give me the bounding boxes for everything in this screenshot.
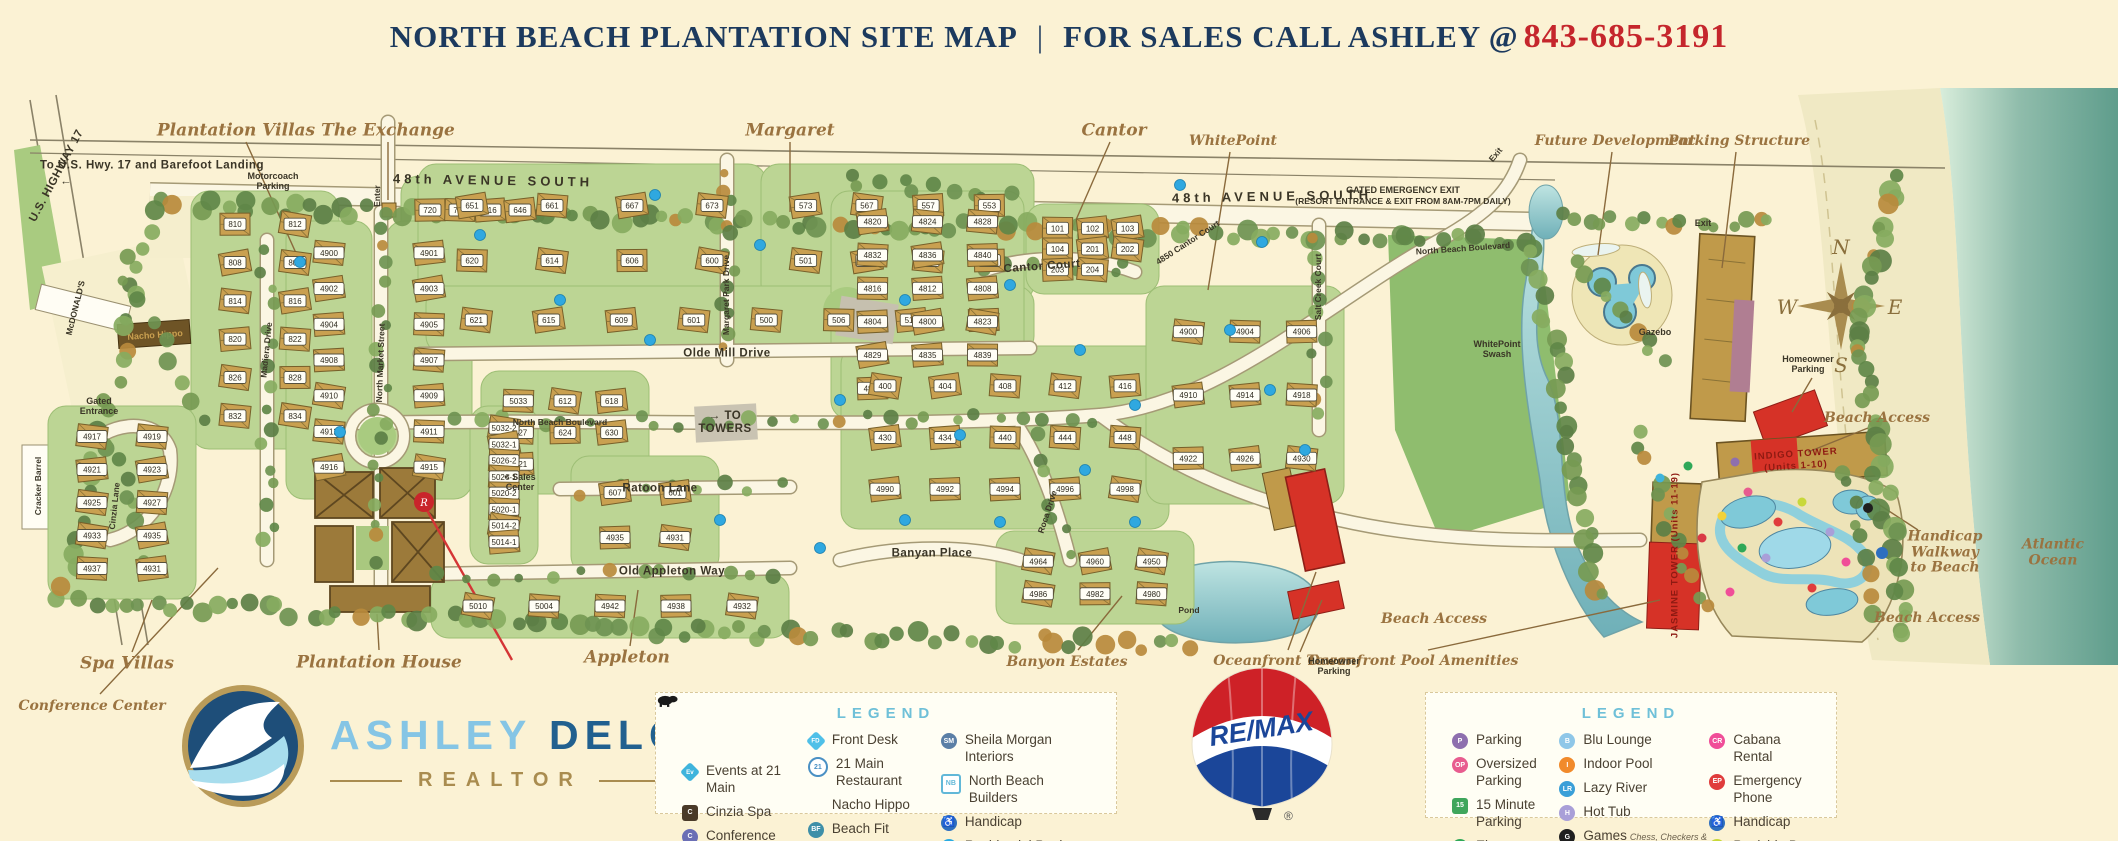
legend-label: Blu Lounge [1583,732,1651,747]
svg-text:4938: 4938 [667,602,685,611]
house-number-5033: 5033 [503,395,533,407]
svg-text:4901: 4901 [420,249,438,258]
house-number-607: 607 [604,487,626,499]
house-number-4998: 4998 [1110,483,1140,495]
svg-text:®: ® [1284,809,1293,823]
svg-text:4994: 4994 [996,485,1014,494]
house-number-4823: 4823 [968,316,998,328]
site-map-page: { "title": { "main": "NORTH BEACH PLANTA… [0,0,2118,841]
svg-text:104: 104 [1051,245,1065,254]
svg-text:4915: 4915 [420,463,438,472]
residential-pool-dot [475,230,486,241]
legend-label: Cabana Rental [1733,732,1780,764]
svg-text:4935: 4935 [143,532,161,541]
house-number-4919: 4919 [137,431,167,443]
legend-label: Events at 21 Main [706,763,781,795]
legend-label: Hot Tub [1583,804,1630,819]
svg-text:4900: 4900 [1179,328,1197,337]
residential-pool-dot [1257,237,1268,248]
legend-item-beach-fit: BFBeach Fit [808,821,941,838]
house-number-4840: 4840 [968,249,998,261]
hot-tub-icon: H [1559,805,1575,821]
house-number-4824: 4824 [913,216,943,228]
house-number-4950: 4950 [1137,555,1167,567]
house-number-4808: 4808 [968,282,998,294]
legend-item-15-minute-parking: 1515 Minute Parking [1452,797,1559,831]
legend-item-handicap: ♿Handicap [1709,814,1810,831]
svg-text:5026-1: 5026-1 [492,473,517,482]
svg-text:614: 614 [545,257,559,266]
legend-label: Conference Center [706,828,776,841]
lawn-pond-row [996,531,1194,624]
svg-text:4986: 4986 [1029,590,1047,599]
title-main: NORTH BEACH PLANTATION SITE MAP [390,19,1018,54]
house-number-5014-1: 5014-1 [489,536,519,548]
house-number-4927: 4927 [137,497,167,509]
house-number-434: 434 [934,432,956,444]
legend-label: Residential Pool [965,838,1063,841]
svg-text:4828: 4828 [974,218,992,227]
residential-pool-dot [1005,280,1016,291]
residential-pool-dot [835,395,846,406]
house-number-4800: 4800 [913,316,943,328]
house-number-4908: 4908 [314,354,344,366]
legend-item-poolside-bar: PBPoolside Bar& GrillSeasonal [1709,838,1810,841]
house-number-4921: 4921 [77,464,107,476]
house-number-621: 621 [465,314,487,326]
gold-rule-left [330,780,402,782]
games-icon: G [1559,829,1575,841]
svg-text:820: 820 [228,335,242,344]
house-number-810: 810 [224,218,246,230]
realtor-first-name: ASHLEY [330,712,532,758]
legend-label: 21 Main Restaurant [836,756,902,788]
svg-text:661: 661 [545,202,559,211]
house-number-720: 720 [419,204,441,216]
house-number-812: 812 [284,218,306,230]
house-number-4812: 4812 [913,282,943,294]
house-number-448: 448 [1114,432,1136,444]
residential-pool-dot [1075,345,1086,356]
svg-text:416: 416 [1118,382,1132,391]
house-number-4935: 4935 [137,530,167,542]
house-number-201: 201 [1082,243,1104,255]
svg-text:102: 102 [1086,224,1100,233]
svg-text:808: 808 [228,259,242,268]
house-number-4900: 4900 [314,247,344,259]
house-number-4931: 4931 [660,532,690,544]
balloon-basket [1252,808,1272,820]
house-number-4915: 4915 [414,461,444,473]
residential-pool-dot [815,543,826,554]
north-beach-builders-icon: NB [941,774,961,794]
svg-text:4935: 4935 [606,534,624,543]
svg-text:506: 506 [832,316,846,325]
residential-pool-dot [1265,385,1276,396]
house-number-4960: 4960 [1080,555,1110,567]
svg-text:4909: 4909 [420,392,438,401]
svg-text:4927: 4927 [143,499,161,508]
svg-text:5014-1: 5014-1 [492,538,517,547]
realtor-title: REALTOR [418,769,583,792]
house-number-600: 600 [701,255,723,267]
legend-item-oversized-parking: OPOversized Parking [1452,756,1559,790]
svg-text:4902: 4902 [320,285,338,294]
svg-text:4919: 4919 [143,433,161,442]
svg-text:4823: 4823 [974,318,992,327]
svg-text:600: 600 [705,257,719,266]
svg-text:4930: 4930 [1293,454,1311,463]
svg-text:N: N [1831,235,1851,259]
legend-label: Elevators [1476,838,1532,841]
svg-text:601: 601 [668,489,682,498]
legend-item-blu-lounge: BBlu Lounge [1559,732,1709,749]
svg-text:5004: 5004 [535,602,553,611]
house-number-4990: 4990 [870,483,900,495]
house-number-5026-1: 5026-1 [489,471,519,483]
house-number-4820: 4820 [858,216,888,228]
house-number-4910: 4910 [314,390,344,402]
svg-text:4900: 4900 [320,249,338,258]
house-number-4938: 4938 [661,600,691,612]
svg-text:E: E [1887,295,1903,319]
legend-item-north-beach-builders: NBNorth Beach Builders [941,773,1090,807]
svg-text:812: 812 [288,220,302,229]
house-number-615: 615 [538,314,560,326]
house-number-808: 808 [224,257,246,269]
svg-text:4964: 4964 [1029,557,1047,566]
svg-text:4921: 4921 [83,466,101,475]
residential-pool-dot [1130,400,1141,411]
svg-text:624: 624 [558,429,572,438]
house-number-624: 624 [554,427,576,439]
house-number-412: 412 [1054,380,1076,392]
svg-text:430: 430 [878,434,892,443]
house-number-4816: 4816 [858,282,888,294]
svg-text:4908: 4908 [320,356,338,365]
svg-text:621: 621 [470,316,484,325]
house-number-4917: 4917 [77,431,107,443]
house-number-4904: 4904 [314,318,344,330]
svg-text:4829: 4829 [864,351,882,360]
svg-text:557: 557 [921,202,935,211]
svg-text:4824: 4824 [919,218,937,227]
house-number-832: 832 [224,410,246,422]
house-number-4903: 4903 [414,283,444,295]
beach-fit-icon: BF [808,822,824,838]
house-number-4996: 4996 [1050,483,1080,495]
house-number-573: 573 [795,200,817,212]
legend-amenities-right: LEGEND PParkingOPOversized Parking1515 M… [1425,692,1837,818]
svg-text:607: 607 [608,489,622,498]
oversized-parking-icon: OP [1452,757,1468,773]
residential-pool-dot [645,335,656,346]
svg-text:567: 567 [860,202,874,211]
house-number-618: 618 [601,395,623,407]
svg-text:R: R [419,498,428,509]
house-number-4905: 4905 [414,318,444,330]
house-number-822: 822 [284,333,306,345]
residential-pool-dot [335,427,346,438]
svg-text:4926: 4926 [1236,454,1254,463]
house-number-816: 816 [284,295,306,307]
svg-text:4910: 4910 [320,392,338,401]
house-number-612: 612 [554,395,576,407]
house-number-4900: 4900 [1173,326,1203,338]
svg-text:434: 434 [938,434,952,443]
cabana-rental-icon: CR [1709,733,1725,749]
svg-text:4960: 4960 [1086,557,1104,566]
house-number-203: 203 [1047,264,1069,276]
svg-text:630: 630 [605,429,619,438]
house-number-104: 104 [1047,243,1069,255]
house-number-204: 204 [1082,264,1104,276]
house-number-4901: 4901 [414,247,444,259]
21-main-restaurant-icon: 21 [808,757,828,777]
house-number-4925: 4925 [77,497,107,509]
house-number-4911: 4911 [414,425,444,437]
house-number-430: 430 [874,432,896,444]
svg-text:4918: 4918 [1293,391,1311,400]
svg-text:4916: 4916 [320,463,338,472]
house-number-553: 553 [978,200,1000,212]
residential-pool-dot [755,240,766,251]
house-number-4992: 4992 [930,483,960,495]
legend-label: Lazy River [1583,780,1647,795]
svg-text:448: 448 [1118,434,1132,443]
svg-text:440: 440 [998,434,1012,443]
svg-text:4905: 4905 [420,320,438,329]
legend-item-lazy-river: LRLazy River [1559,780,1709,797]
svg-text:615: 615 [542,316,556,325]
legend-label: Handicap [1733,814,1790,829]
house-number-4839: 4839 [968,349,998,361]
legend-label: 15 Minute Parking [1476,797,1535,829]
svg-text:816: 816 [288,297,302,306]
svg-text:501: 501 [799,257,813,266]
svg-text:4812: 4812 [919,284,937,293]
svg-text:444: 444 [1058,434,1072,443]
legend-item-sheila-morgan-interiors: SMSheila Morgan Interiors [941,732,1090,766]
house-number-614: 614 [541,255,563,267]
residential-pool-dot [1175,180,1186,191]
svg-text:4804: 4804 [864,318,882,327]
svg-text:720: 720 [423,206,437,215]
legend-label: Sheila Morgan Interiors [965,732,1052,764]
15-minute-parking-icon: 15 [1452,798,1468,814]
svg-text:5026-2: 5026-2 [492,457,517,466]
residential-pool-dot [955,430,966,441]
title-phone[interactable]: 843-685-3191 [1524,18,1729,55]
svg-text:5014-2: 5014-2 [492,522,517,531]
legend-label: Oversized Parking [1476,756,1537,788]
legend-item-parking: PParking [1452,732,1559,749]
svg-text:4808: 4808 [974,284,992,293]
house-number-606: 606 [621,255,643,267]
lawn-appleton-block [571,456,719,574]
house-number-826: 826 [224,372,246,384]
house-number-630: 630 [601,427,623,439]
house-number-416: 416 [1114,380,1136,392]
svg-text:204: 204 [1086,266,1100,275]
svg-text:834: 834 [288,412,302,421]
svg-text:4904: 4904 [320,320,338,329]
svg-text:4914: 4914 [1236,391,1254,400]
house-number-4937: 4937 [77,563,107,575]
legend-item-conference-center: CConference Center [682,828,808,841]
house-number-567: 567 [856,200,878,212]
svg-text:612: 612 [558,397,572,406]
house-number-4909: 4909 [414,390,444,402]
handicap-icon: ♿ [1709,815,1725,831]
house-number-4804: 4804 [858,316,888,328]
svg-text:4816: 4816 [864,284,882,293]
handicap-icon: ♿ [941,815,957,831]
house-number-673: 673 [701,200,723,212]
residential-pool-dot [900,515,911,526]
svg-text:4982: 4982 [1086,590,1104,599]
svg-text:826: 826 [228,374,242,383]
house-number-620: 620 [461,255,483,267]
house-number-202: 202 [1117,243,1139,255]
legend-item-elevators: EElevators [1452,838,1559,841]
svg-text:203: 203 [1051,266,1065,275]
indoor-pool-icon: I [1559,757,1575,773]
page-title: NORTH BEACH PLANTATION SITE MAP | FOR SA… [0,18,2118,56]
legend-item-cabana-rental: CRCabana Rental [1709,732,1810,766]
conference-center-icon: C [682,829,698,841]
svg-text:202: 202 [1121,245,1135,254]
legend-label: Front Desk [832,732,898,747]
house-number-440: 440 [994,432,1016,444]
house-number-651: 651 [461,200,483,212]
legend-item-handicap: ♿Handicap [941,814,1090,831]
house-number-4931: 4931 [137,563,167,575]
house-number-646: 646 [509,204,531,216]
cinzia-spa-icon: C [682,805,698,821]
svg-text:408: 408 [998,382,1012,391]
house-number-101: 101 [1047,222,1069,234]
house-number-828: 828 [284,372,306,384]
svg-text:822: 822 [288,335,302,344]
svg-text:4998: 4998 [1116,485,1134,494]
house-number-661: 661 [541,200,563,212]
svg-text:553: 553 [983,202,997,211]
svg-text:4942: 4942 [601,602,619,611]
house-number-4829: 4829 [858,349,888,361]
residential-pool-dot [650,190,661,201]
svg-text:4925: 4925 [83,499,101,508]
house-number-4832: 4832 [858,249,888,261]
legend-resort-center: LEGEND EvEvents at 21 MainCCinzia SpaCCo… [655,692,1117,814]
legend-main-title: LEGEND [656,693,1116,722]
legend-item-nacho-hippo: Nacho Hippo [808,797,941,814]
svg-text:4910: 4910 [1179,391,1197,400]
legend-item-hot-tub: HHot Tub [1559,804,1709,821]
parking-icon: P [1452,733,1468,749]
house-number-4902: 4902 [314,283,344,295]
svg-text:4820: 4820 [864,218,882,227]
house-number-404: 404 [934,380,956,392]
legend-label: Poolside Bar [1733,838,1810,841]
house-number-4942: 4942 [595,600,625,612]
svg-text:4932: 4932 [733,602,751,611]
legend-item-residential-pool: Residential Pool [941,838,1090,841]
legend-label: Parking [1476,732,1522,747]
front-desk-icon: FD [806,731,826,751]
svg-text:618: 618 [605,397,619,406]
legend-label: Indoor Pool [1583,756,1652,771]
house-number-408: 408 [994,380,1016,392]
remax-balloon: RE/MAX ® [1185,660,1340,823]
svg-text:609: 609 [615,316,629,325]
house-number-4836: 4836 [913,249,943,261]
svg-text:4832: 4832 [864,251,882,260]
house-number-834: 834 [284,410,306,422]
svg-text:4839: 4839 [974,351,992,360]
svg-text:4931: 4931 [143,565,161,574]
svg-text:4835: 4835 [919,351,937,360]
legend-label: Handicap [965,814,1022,829]
house-number-4923: 4923 [137,464,167,476]
legend-label: Cinzia Spa [706,804,771,819]
legend-item-cinzia-spa: CCinzia Spa [682,804,808,821]
residential-pool-dot [900,295,911,306]
svg-text:4836: 4836 [919,251,937,260]
svg-text:201: 201 [1086,245,1100,254]
house-number-4926: 4926 [1230,452,1260,464]
svg-text:4923: 4923 [143,466,161,475]
house-number-4932: 4932 [727,600,757,612]
house-number-601: 601 [683,314,705,326]
house-number-820: 820 [224,333,246,345]
svg-text:4933: 4933 [83,532,101,541]
house-number-500: 500 [755,314,777,326]
house-number-400: 400 [874,380,896,392]
svg-text:4980: 4980 [1143,590,1161,599]
residential-pool-dot [1130,517,1141,528]
house-number-4918: 4918 [1287,389,1317,401]
house-number-4907: 4907 [414,354,444,366]
residential-pool-dot [1225,325,1236,336]
house-number-4994: 4994 [990,483,1020,495]
svg-text:4990: 4990 [876,485,894,494]
legend-label: Games [1583,828,1627,841]
nacho-hippo-icon [808,798,824,814]
svg-text:4992: 4992 [936,485,954,494]
house-number-667: 667 [621,200,643,212]
svg-text:4800: 4800 [919,318,937,327]
emergency-phone-icon: EP [1709,774,1725,790]
legend-item-front-desk: FDFront Desk [808,732,941,749]
residential-pool-dot [555,295,566,306]
svg-text:4906: 4906 [1293,328,1311,337]
house-number-444: 444 [1054,432,1076,444]
jasmine-tower [1647,482,1702,630]
svg-text:4931: 4931 [666,534,684,543]
legend-item-21-main-restaurant: 2121 Main Restaurant [808,756,941,790]
svg-text:101: 101 [1051,224,1065,233]
house-number-4935: 4935 [600,532,630,544]
svg-text:667: 667 [625,202,639,211]
house-number-4906: 4906 [1287,326,1317,338]
house-number-601: 601 [664,487,686,499]
svg-text:W: W [1777,295,1799,319]
svg-text:5010: 5010 [469,602,487,611]
svg-text:810: 810 [228,220,242,229]
legend-item-events-at-21-main: EvEvents at 21 Main [682,763,808,797]
svg-text:103: 103 [1121,224,1135,233]
